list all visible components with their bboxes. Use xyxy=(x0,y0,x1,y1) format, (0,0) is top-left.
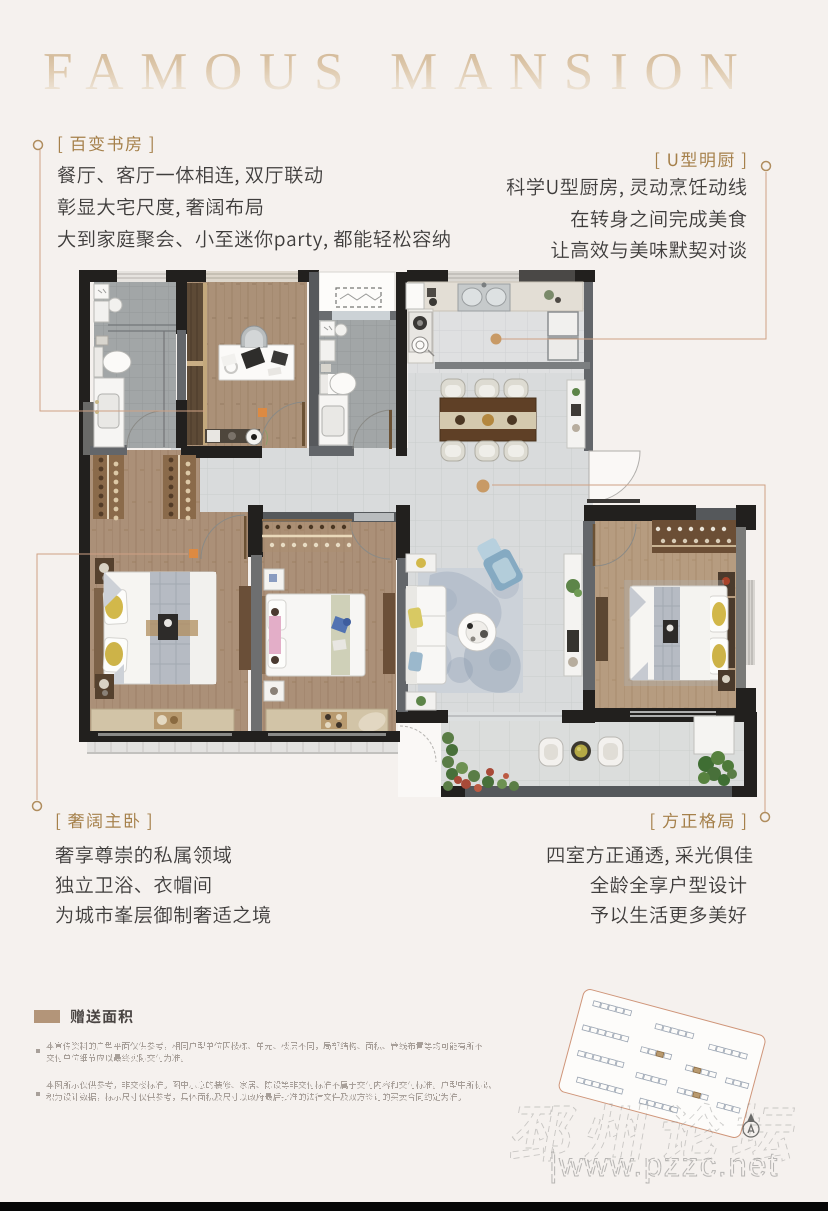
svg-text:|www.pzzc.net: |www.pzzc.net xyxy=(549,1146,779,1183)
svg-text:FAMOUS MANSION: FAMOUS MANSION xyxy=(43,43,754,101)
